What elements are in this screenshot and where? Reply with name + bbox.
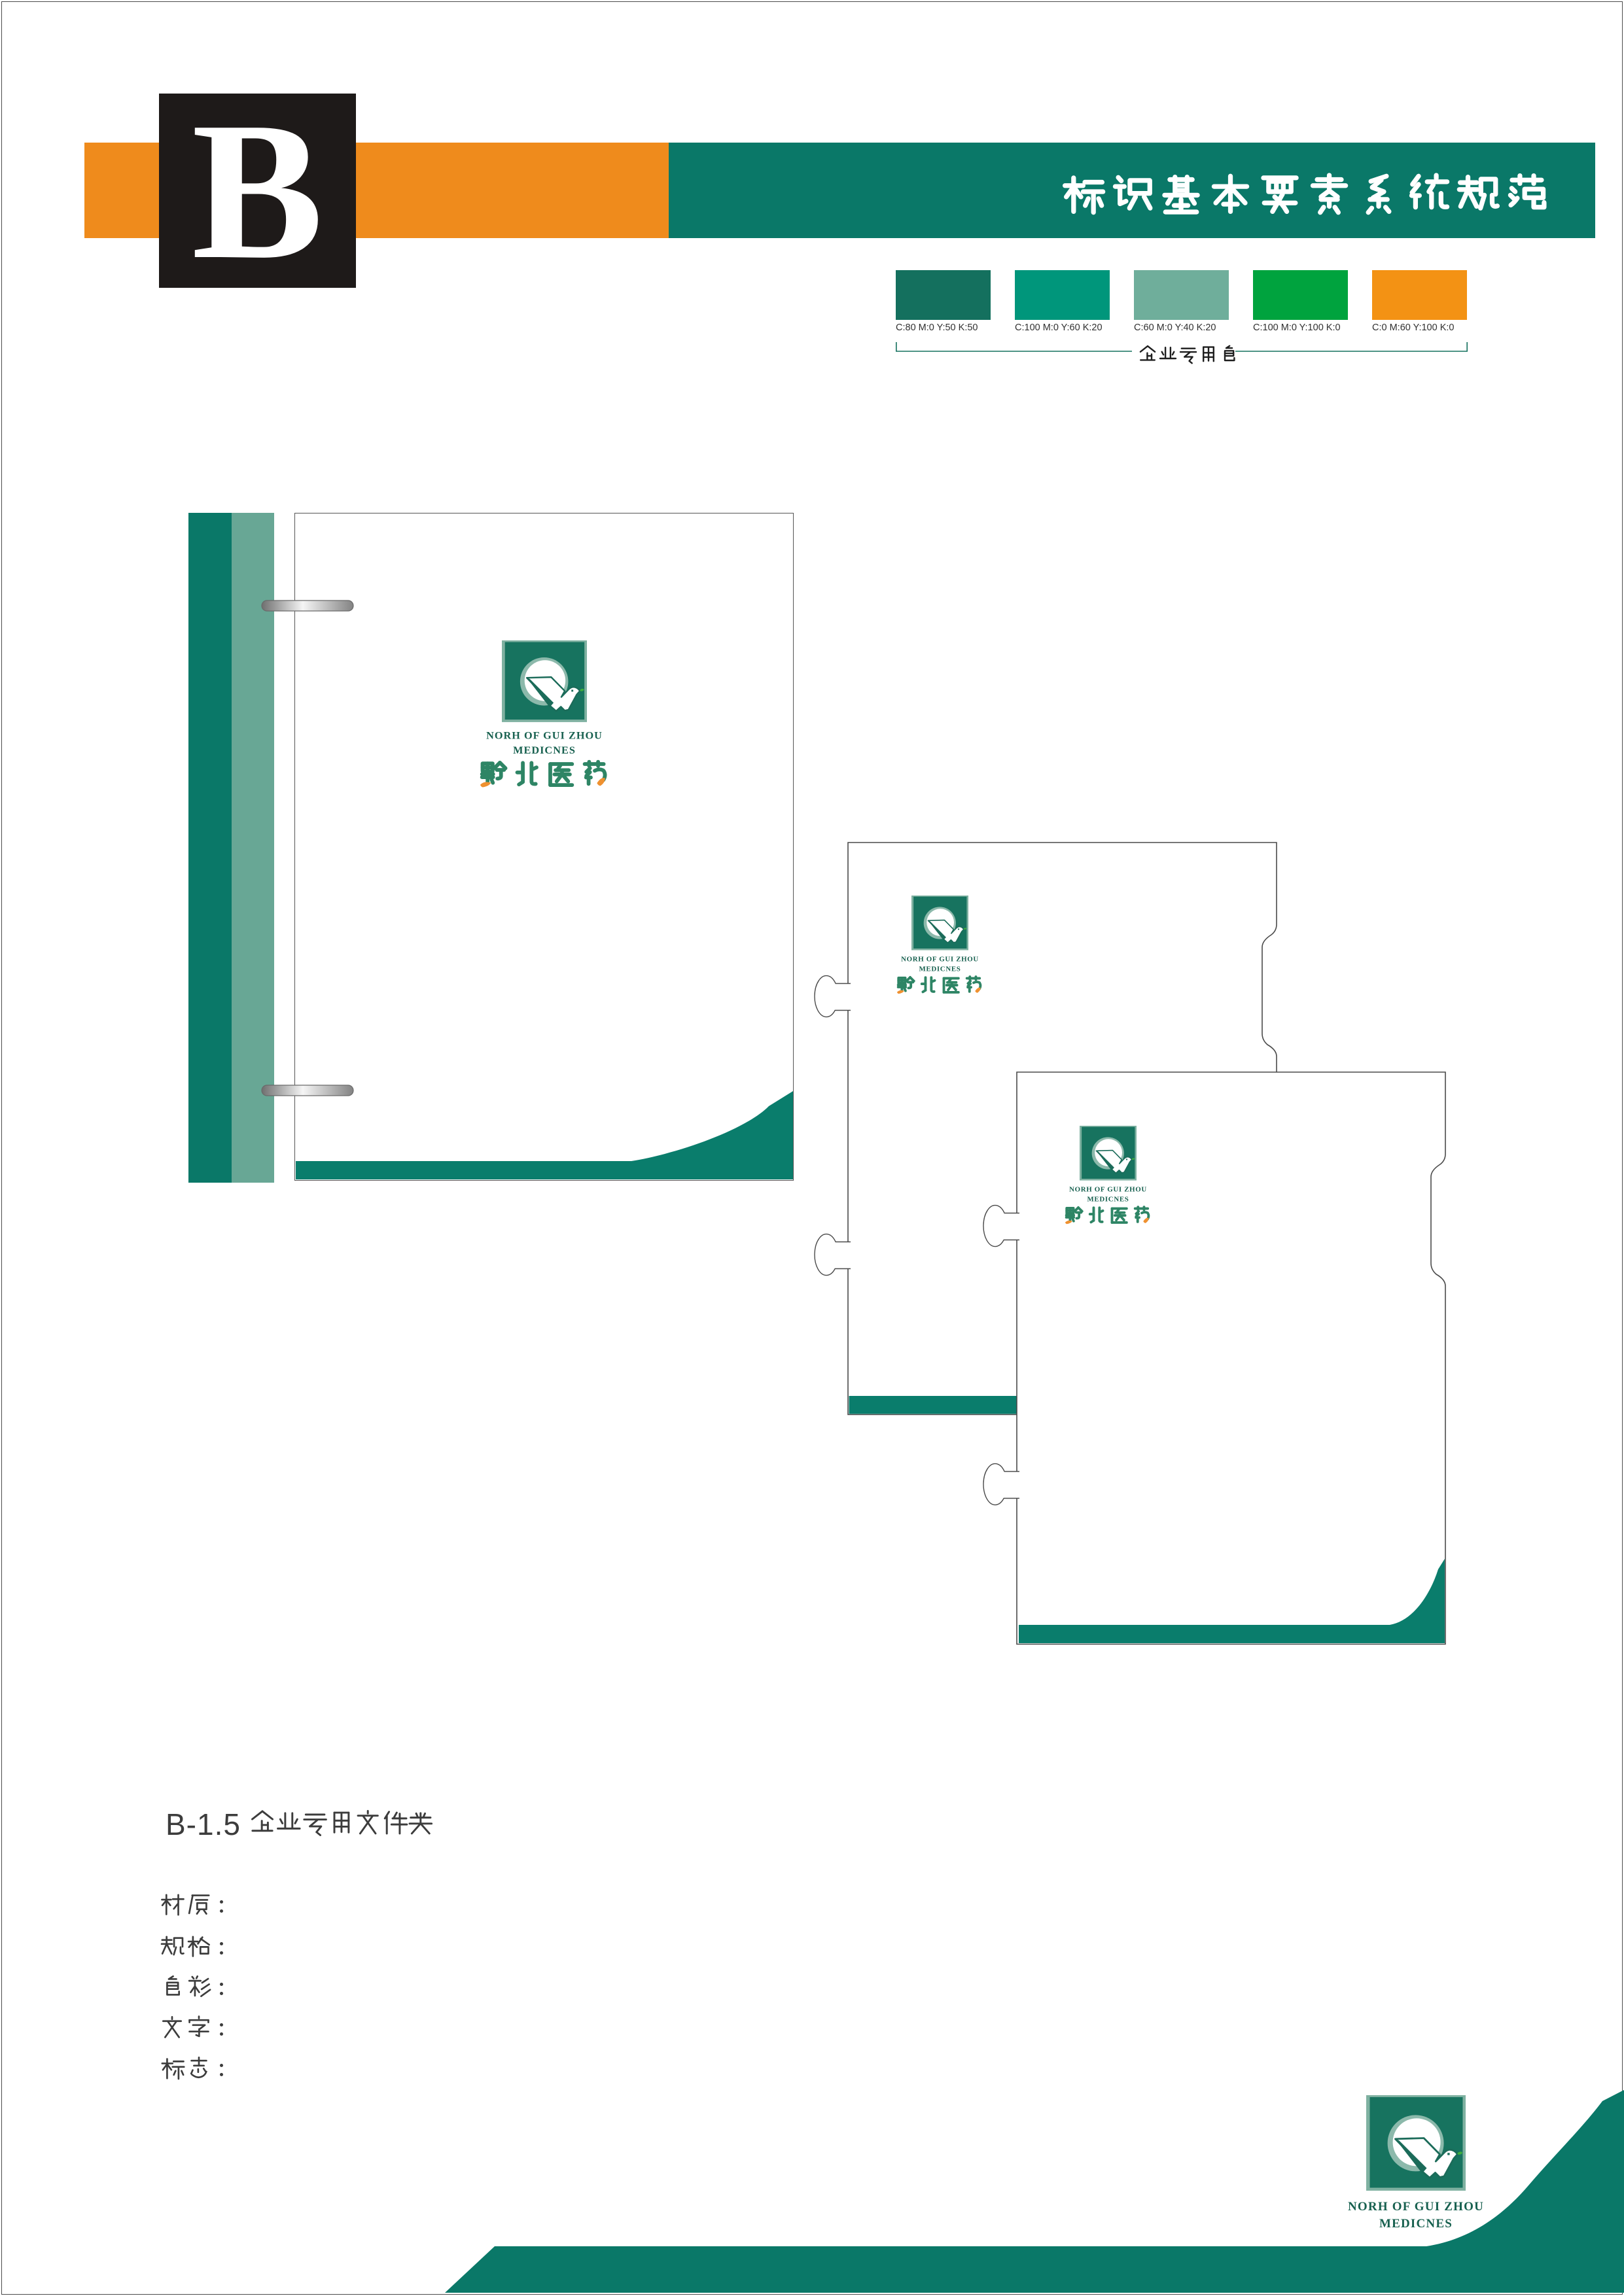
svg-text:MEDICNES: MEDICNES [513,744,576,756]
svg-text:NORH OF GUI ZHOU: NORH OF GUI ZHOU [1069,1186,1147,1194]
svg-text:NORH OF GUI ZHOU: NORH OF GUI ZHOU [901,956,979,964]
svg-text:NORH OF GUI ZHOU: NORH OF GUI ZHOU [486,730,603,742]
svg-text:MEDICNES: MEDICNES [1087,1196,1129,1204]
svg-text:MEDICNES: MEDICNES [919,965,961,973]
